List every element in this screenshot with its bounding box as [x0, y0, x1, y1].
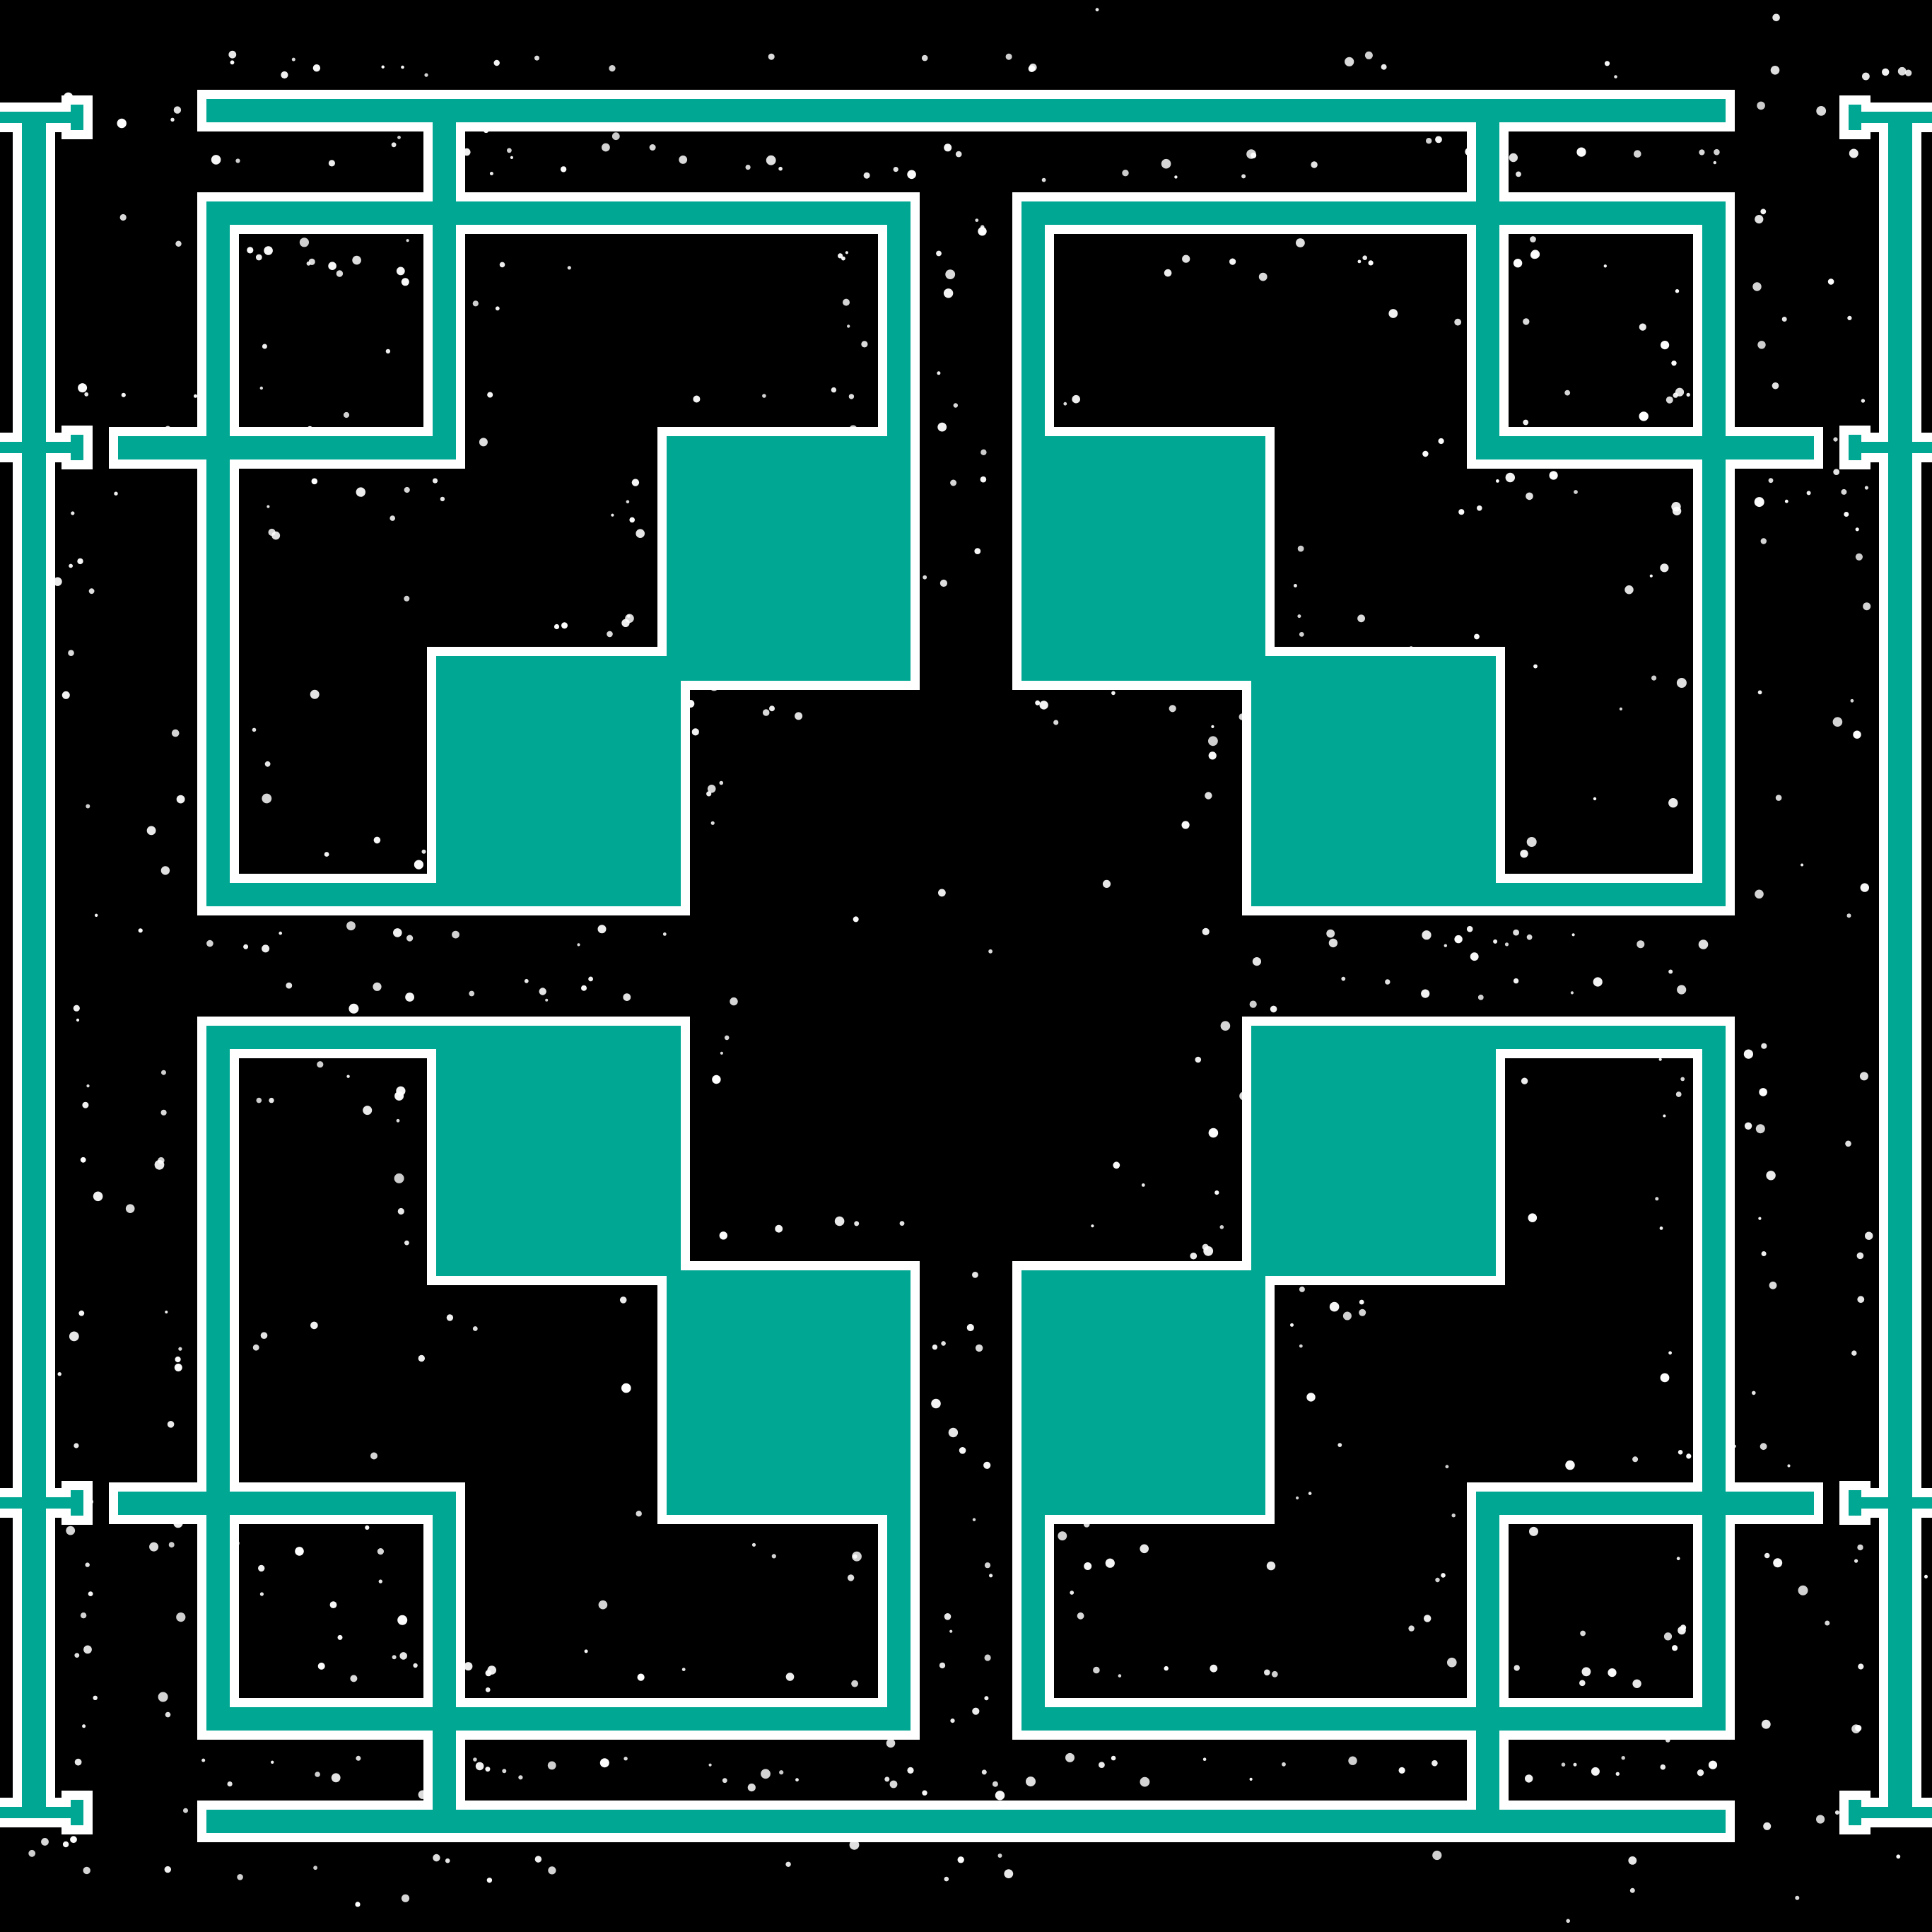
- speckle: [473, 1326, 478, 1331]
- speckle: [71, 462, 78, 469]
- speckle: [1857, 1253, 1864, 1260]
- speckle: [762, 394, 766, 398]
- speckle: [307, 262, 311, 266]
- speckle: [956, 151, 962, 158]
- speckle: [1099, 1762, 1105, 1768]
- speckle: [1851, 699, 1854, 703]
- speckle: [1467, 926, 1473, 932]
- speckle: [1772, 14, 1780, 22]
- speckle: [548, 1866, 556, 1874]
- speckle: [1174, 175, 1177, 178]
- speckle: [682, 1668, 686, 1671]
- speckle: [1787, 1464, 1790, 1467]
- speckle: [76, 1019, 79, 1021]
- speckle: [626, 500, 630, 504]
- speckle: [53, 578, 62, 586]
- speckle: [1182, 255, 1190, 263]
- left-tick-top: [0, 112, 71, 123]
- speckle: [1769, 478, 1774, 483]
- speckle: [931, 1399, 941, 1409]
- speckle: [1294, 584, 1297, 587]
- speckle: [720, 1231, 727, 1239]
- speckle: [1208, 736, 1218, 746]
- speckle: [650, 144, 656, 151]
- speckle: [257, 1098, 262, 1103]
- speckle: [74, 1443, 78, 1448]
- speckle: [396, 1087, 405, 1096]
- speckle: [598, 925, 607, 933]
- speckle: [494, 60, 500, 66]
- speckle: [500, 262, 505, 268]
- speckle: [365, 1526, 369, 1530]
- speckle: [46, 199, 51, 204]
- speckle: [24, 103, 32, 110]
- speckle: [1733, 1445, 1736, 1448]
- speckle: [1574, 490, 1578, 494]
- speckle: [1632, 1680, 1641, 1688]
- right-tick-lower: [1861, 1497, 1932, 1509]
- bl-filled-square-lower: [667, 1270, 911, 1515]
- speckle: [382, 66, 385, 69]
- speckle: [256, 254, 262, 261]
- speckle: [62, 691, 70, 699]
- bl-frame-bottom: [206, 1707, 911, 1731]
- speckle: [161, 866, 170, 874]
- speckle: [1680, 1077, 1685, 1082]
- speckle: [401, 66, 404, 69]
- speckle: [1572, 933, 1575, 936]
- speckle: [86, 1084, 89, 1087]
- speckle: [850, 1840, 860, 1850]
- speckle: [937, 423, 947, 432]
- speckle: [78, 1311, 84, 1316]
- speckle: [1446, 1465, 1449, 1468]
- speckle: [58, 1372, 62, 1376]
- speckle: [41, 1838, 49, 1846]
- speckle: [174, 106, 181, 113]
- speckle: [831, 387, 836, 392]
- speckle: [1659, 1058, 1662, 1061]
- speckle: [313, 1866, 317, 1870]
- left-tick-lower-cap: [71, 1490, 83, 1516]
- speckle: [258, 1565, 264, 1571]
- speckle: [1221, 1021, 1231, 1031]
- speckle: [1677, 678, 1687, 688]
- speckle: [1760, 209, 1766, 214]
- speckle: [1564, 390, 1570, 396]
- speckle: [884, 1776, 889, 1781]
- speckle: [945, 269, 955, 279]
- speckle: [262, 944, 269, 952]
- speckle: [1250, 1001, 1257, 1008]
- speckle: [1065, 1753, 1075, 1762]
- speckle: [397, 267, 405, 276]
- br-filled-square-upper: [1251, 1026, 1496, 1276]
- speckle: [535, 1856, 541, 1862]
- speckle: [967, 1324, 974, 1331]
- speckle: [958, 1856, 964, 1863]
- speckle: [982, 1769, 987, 1774]
- speckle: [1164, 1666, 1169, 1670]
- speckle: [286, 983, 292, 989]
- speckle: [785, 1862, 790, 1867]
- speckle: [1118, 1674, 1122, 1678]
- speckle: [1863, 602, 1870, 610]
- lattice-artwork: [0, 0, 1932, 1932]
- speckle: [778, 167, 783, 171]
- speckle: [452, 931, 459, 939]
- speckle: [847, 324, 850, 327]
- speckle: [1668, 1351, 1672, 1354]
- speckle: [313, 64, 320, 71]
- speckle: [31, 1818, 35, 1822]
- speckle: [64, 93, 73, 102]
- speckle: [68, 650, 74, 656]
- br-filled-square-lower: [1021, 1270, 1265, 1515]
- speckle: [84, 392, 88, 397]
- speckle: [1755, 215, 1763, 223]
- speckle: [922, 55, 928, 62]
- speckle: [295, 1547, 304, 1556]
- right-tick-lower-cap: [1849, 1490, 1861, 1516]
- speckle: [980, 476, 987, 483]
- speckle: [414, 860, 423, 870]
- speckle: [447, 1314, 453, 1321]
- speckle: [1660, 1226, 1663, 1230]
- speckle: [440, 497, 445, 501]
- speckle: [1686, 1453, 1691, 1458]
- speckle: [1632, 1456, 1638, 1462]
- speckle: [318, 1663, 325, 1670]
- br-inner-vertical: [1476, 1492, 1499, 1833]
- speckle: [995, 1791, 1005, 1800]
- speckle: [413, 1663, 417, 1668]
- speckle: [78, 383, 87, 392]
- speckle: [418, 1355, 425, 1362]
- speckle: [907, 170, 916, 180]
- speckle: [768, 54, 775, 60]
- speckle: [730, 997, 737, 1005]
- speckle: [404, 1241, 409, 1246]
- speckle: [585, 1649, 588, 1653]
- speckle: [769, 706, 775, 711]
- speckle: [1432, 1760, 1438, 1767]
- speckle: [976, 1345, 983, 1352]
- speckle: [1759, 1088, 1767, 1096]
- speckle: [424, 74, 428, 77]
- speckle: [1251, 153, 1256, 158]
- speckle: [271, 1761, 274, 1764]
- speckle: [1857, 1545, 1863, 1550]
- speckle: [944, 144, 952, 151]
- speckle: [356, 487, 365, 496]
- speckle: [352, 256, 361, 265]
- speckle: [1795, 1896, 1799, 1900]
- speckle: [1329, 939, 1337, 947]
- speckle: [1620, 708, 1622, 710]
- speckle: [725, 1036, 730, 1041]
- speckle: [1664, 1632, 1672, 1640]
- speckle: [69, 564, 73, 568]
- speckle: [1816, 106, 1826, 116]
- speckle: [479, 438, 488, 446]
- speckle: [937, 371, 940, 375]
- speckle: [1758, 691, 1762, 695]
- speckle: [1296, 238, 1305, 247]
- speckle: [1660, 563, 1668, 572]
- speckle: [835, 1217, 845, 1226]
- speckle: [243, 944, 248, 949]
- speckle: [93, 1192, 103, 1202]
- speckle: [936, 251, 942, 257]
- left-border-line: [22, 117, 46, 1815]
- speckle: [1856, 554, 1863, 561]
- speckle: [972, 1272, 978, 1278]
- speckle: [228, 51, 236, 59]
- speckle: [1801, 864, 1803, 867]
- speckle: [1841, 489, 1846, 495]
- speckle: [949, 1630, 952, 1633]
- speckle: [1084, 1562, 1091, 1570]
- speckle: [330, 1601, 337, 1608]
- speckle: [404, 487, 410, 493]
- speckle: [607, 631, 613, 638]
- speckle: [1493, 939, 1497, 944]
- speckle: [1529, 1527, 1538, 1536]
- speckle: [81, 1612, 86, 1618]
- speckle: [1769, 1282, 1777, 1289]
- speckle: [1435, 136, 1442, 144]
- speckle: [1605, 61, 1610, 66]
- speckle: [1757, 102, 1765, 110]
- speckle: [1513, 930, 1519, 936]
- speckle: [1111, 1756, 1116, 1761]
- speckle: [984, 1696, 988, 1700]
- speckle: [418, 1791, 427, 1799]
- speckle: [974, 548, 980, 554]
- lattice-pattern-svg: [0, 0, 1932, 1932]
- speckle: [1409, 646, 1414, 651]
- left-tick-top-cap: [71, 105, 83, 130]
- speckle: [1661, 1764, 1666, 1770]
- speckle: [1084, 1521, 1090, 1528]
- speckle: [972, 1708, 979, 1715]
- speckle: [1766, 1171, 1775, 1180]
- speckle: [1282, 1762, 1286, 1767]
- speckle: [1745, 1123, 1752, 1130]
- tr-inner-horizontal: [1476, 436, 1814, 459]
- speckle: [1306, 1393, 1315, 1401]
- speckle: [1190, 1253, 1198, 1260]
- left-tick-upper: [0, 442, 71, 453]
- speckle: [490, 172, 493, 175]
- speckle: [1828, 279, 1834, 285]
- speckle: [1785, 500, 1788, 503]
- speckle: [1677, 985, 1686, 994]
- speckle: [1229, 259, 1236, 265]
- speckle: [332, 1833, 339, 1839]
- speckle: [349, 1004, 358, 1014]
- speckle: [1763, 1822, 1771, 1830]
- speckle: [752, 1543, 756, 1547]
- speckle: [854, 1221, 859, 1226]
- speckle: [1571, 991, 1574, 994]
- speckle: [233, 1540, 239, 1546]
- speckle: [621, 619, 629, 627]
- speckle: [954, 403, 958, 407]
- speckle: [1593, 977, 1603, 986]
- speckle: [1209, 751, 1217, 759]
- speckle: [74, 1005, 80, 1012]
- bl-frame-left: [206, 1026, 230, 1731]
- speckle: [404, 596, 409, 602]
- speckle: [397, 136, 401, 139]
- speckle: [1744, 1050, 1753, 1059]
- speckle: [1762, 1720, 1771, 1729]
- speckle: [1714, 161, 1716, 164]
- speckle: [1091, 1224, 1094, 1227]
- speckle: [706, 791, 711, 796]
- speckle: [1523, 420, 1528, 426]
- speckle: [1764, 1553, 1770, 1559]
- speckle: [336, 270, 343, 276]
- speckle: [841, 257, 845, 261]
- speckle: [1270, 1006, 1277, 1013]
- tl-filled-square-lower: [436, 656, 681, 906]
- speckle: [1250, 1778, 1253, 1781]
- speckle: [693, 396, 700, 403]
- speckle: [1639, 411, 1649, 421]
- speckle: [973, 1518, 976, 1521]
- speckle: [1161, 159, 1171, 169]
- speckle: [114, 492, 117, 496]
- speckle: [1348, 1757, 1357, 1765]
- speckle: [998, 1854, 1002, 1858]
- speckle: [496, 306, 500, 310]
- speckle: [1058, 1531, 1067, 1540]
- speckle: [77, 558, 83, 564]
- speckle: [949, 1428, 958, 1437]
- speckle: [1761, 538, 1767, 544]
- speckle: [1422, 930, 1431, 939]
- speckle: [907, 1767, 913, 1774]
- speckle: [534, 56, 539, 61]
- speckle: [1272, 1671, 1278, 1678]
- speckle: [525, 979, 529, 983]
- speckle: [1624, 585, 1633, 594]
- speckle: [1458, 509, 1464, 515]
- speckle: [1359, 1300, 1364, 1305]
- speckle: [894, 167, 898, 172]
- speckle: [1337, 1443, 1342, 1447]
- speckle: [63, 1842, 69, 1847]
- speckle: [147, 826, 156, 836]
- speckle: [271, 532, 280, 540]
- speckle: [623, 993, 631, 1001]
- speckle: [849, 394, 854, 399]
- speckle: [363, 1106, 372, 1115]
- speckle: [1526, 493, 1533, 500]
- speckle: [1210, 1665, 1217, 1673]
- speckle: [848, 1574, 854, 1581]
- speckle: [581, 985, 587, 991]
- speckle: [1816, 1815, 1825, 1823]
- right-tick-bottom-cap: [1849, 1800, 1861, 1825]
- speckle: [264, 246, 273, 255]
- speckle: [307, 426, 312, 432]
- speckle: [173, 1518, 182, 1528]
- speckle: [1842, 1793, 1847, 1798]
- speckle: [292, 58, 295, 62]
- speckle: [177, 795, 185, 804]
- speckle: [1514, 259, 1522, 267]
- speckle: [1566, 1919, 1570, 1924]
- speckle: [980, 450, 986, 455]
- speckle: [1421, 990, 1429, 998]
- speckle: [1509, 153, 1518, 162]
- speckle: [1817, 450, 1821, 453]
- speckle: [1298, 546, 1304, 552]
- speckle: [228, 1781, 233, 1786]
- speckle: [843, 299, 850, 306]
- speckle: [201, 1759, 205, 1762]
- speckle: [1639, 324, 1646, 331]
- speckle: [1576, 148, 1586, 157]
- tr-inner-vertical: [1476, 99, 1499, 459]
- speckle: [881, 1679, 884, 1682]
- speckle: [1565, 1460, 1574, 1470]
- speckle: [1359, 1309, 1366, 1316]
- speckle: [545, 999, 548, 1002]
- speckle: [709, 1764, 712, 1767]
- speckle: [13, 170, 21, 178]
- speckle: [1290, 1323, 1294, 1327]
- speckle: [1798, 1586, 1808, 1596]
- speckle: [1330, 1302, 1340, 1312]
- speckle: [1667, 874, 1673, 881]
- speckle: [476, 1762, 484, 1771]
- speckle: [1227, 124, 1234, 131]
- speckle: [1861, 399, 1865, 402]
- speckle: [1454, 319, 1461, 326]
- speckle: [720, 781, 724, 785]
- speckle: [1614, 75, 1617, 78]
- speckle: [1773, 1558, 1782, 1567]
- speckle: [1905, 70, 1911, 76]
- speckle: [786, 1673, 795, 1681]
- speckle: [748, 1784, 756, 1791]
- speckle: [1267, 1562, 1275, 1570]
- speckle: [1496, 479, 1499, 483]
- speckle: [269, 1098, 274, 1103]
- speckle: [795, 1778, 799, 1781]
- speckle: [761, 1769, 771, 1779]
- speckle: [1844, 512, 1849, 517]
- br-frame-bottom: [1021, 1707, 1726, 1731]
- speckle: [1516, 172, 1521, 177]
- speckle: [1454, 935, 1462, 943]
- speckle: [941, 1341, 946, 1346]
- speckle: [406, 935, 413, 942]
- speckle: [405, 993, 414, 1002]
- speckle: [260, 1592, 264, 1596]
- speckle: [944, 1613, 952, 1620]
- speckle: [1678, 1627, 1686, 1635]
- speckle: [328, 262, 336, 270]
- speckle: [1345, 57, 1354, 66]
- speckle: [944, 1877, 949, 1882]
- speckle: [1239, 1091, 1248, 1100]
